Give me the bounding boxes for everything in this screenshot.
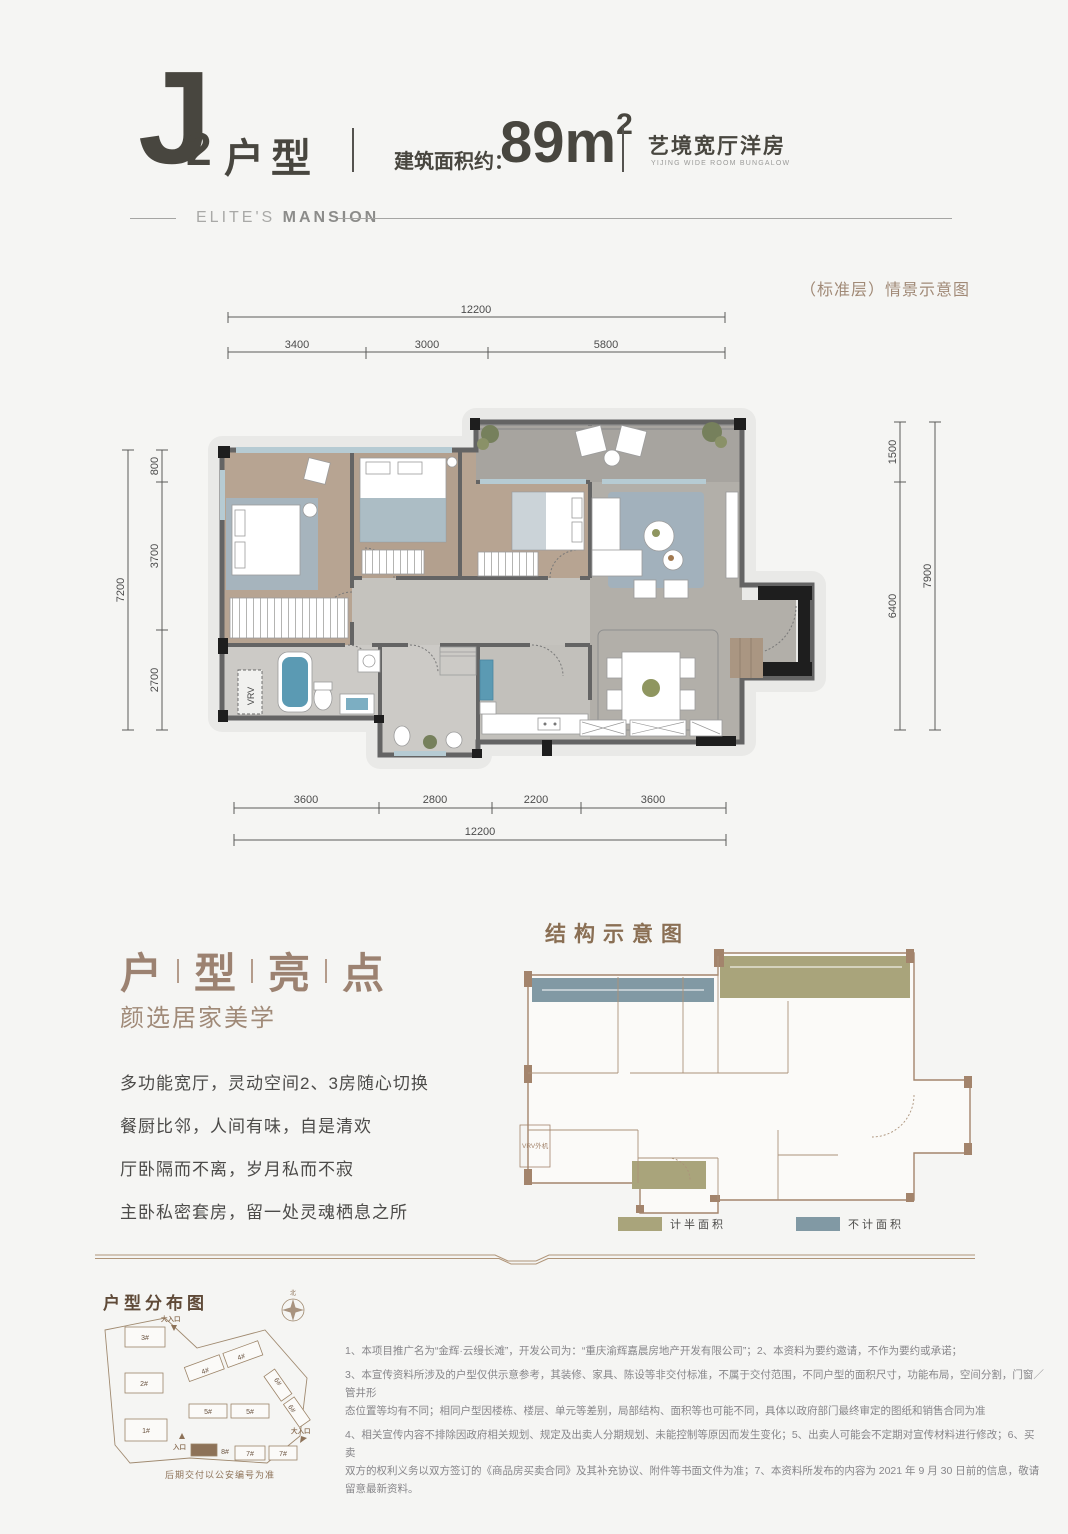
svg-text:7#: 7# (246, 1451, 254, 1458)
legend-label: 不计面积 (848, 1216, 904, 1232)
entrance-labels: 大入口 入口 大入口 (161, 1314, 311, 1451)
legend-label: 计半面积 (670, 1216, 726, 1232)
half-area-foyer (632, 1161, 706, 1189)
tagline-en: YIJING WIDE ROOM BUNGALOW (651, 160, 790, 167)
disclaimer-line: 1、本项目推广名为“金辉·云缦长滩”，开发公司为：“重庆渝辉嘉晨房地产开发有限公… (345, 1342, 1045, 1360)
svg-text:3600: 3600 (641, 794, 665, 806)
unit-type-label: 户型 (224, 126, 318, 184)
no-area-swatch (796, 1217, 840, 1231)
svg-text:北: 北 (290, 1289, 296, 1297)
highlight-line: 餐厨比邻，人间有味，自是清欢 (120, 1105, 429, 1148)
floor-plan: VRV 12200 3400 3000 5800 7200 800 (110, 300, 990, 860)
structure-legend: 计半面积 不计面积 (618, 1216, 904, 1232)
svg-text:1#: 1# (142, 1428, 150, 1435)
legend-item-no-area: 不计面积 (796, 1216, 904, 1232)
highlight-line: 多功能宽厅，灵动空间2、3房随心切换 (120, 1062, 429, 1105)
area-value: 89m2 (500, 110, 633, 172)
svg-text:3400: 3400 (285, 339, 309, 351)
area-label: 建筑面积约： (394, 145, 514, 174)
scene-note: （标准层）情景示意图 (730, 276, 970, 300)
svg-text:1500: 1500 (887, 440, 899, 464)
svg-text:VRV外机: VRV外机 (522, 1141, 549, 1150)
highlight-line: 厅卧隔而不离，岁月私而不寂 (120, 1148, 429, 1191)
header-divider-1 (352, 128, 354, 172)
svg-text:12200: 12200 (465, 826, 496, 838)
svg-text:2#: 2# (140, 1381, 148, 1388)
highlights-lines: 多功能宽厅，灵动空间2、3房随心切换 餐厨比邻，人间有味，自是清欢 厅卧隔而不离… (120, 1062, 429, 1234)
svg-text:3700: 3700 (149, 544, 161, 568)
svg-text:5800: 5800 (594, 339, 618, 351)
structure-diagram: VRV外机 (478, 905, 1043, 1255)
area-exponent: 2 (616, 108, 633, 141)
svg-text:800: 800 (149, 457, 161, 475)
highlights-title: 户 型 亮 点 (120, 940, 384, 1001)
svg-text:入口: 入口 (172, 1443, 186, 1451)
disclaimer: 1、本项目推广名为“金辉·云缦长滩”，开发公司为：“重庆渝辉嘉晨房地产开发有限公… (345, 1342, 1045, 1498)
svg-text:5#: 5# (246, 1409, 254, 1416)
highlights-subtitle: 颜选居家美学 (120, 998, 276, 1033)
svg-text:2700: 2700 (149, 668, 161, 692)
disclaimer-line: 双方的权利义务以双方签订的《商品房买卖合同》及其补充协议、附件等书面文件为准；7… (345, 1462, 1045, 1498)
header-divider-2 (622, 126, 624, 172)
svg-text:5#: 5# (204, 1409, 212, 1416)
vrv-label: VRV (246, 687, 256, 705)
svg-text:7200: 7200 (115, 578, 127, 602)
svg-text:3600: 3600 (294, 794, 318, 806)
siteplan-caption: 后期交付以公安编号为准 (140, 1468, 300, 1481)
svg-text:8#: 8# (221, 1449, 229, 1456)
brand-line-left (130, 218, 176, 219)
legend-item-half-area: 计半面积 (618, 1216, 726, 1232)
unit-number: 2 (186, 122, 212, 176)
disclaimer-line: 态位置等均有不同；相同户型因楼栋、楼层、单元等差别，局部结构、面积等也可能不同，… (345, 1402, 1045, 1420)
entrance-arrow-left (179, 1433, 185, 1439)
vrv-unit: VRV (238, 670, 262, 714)
svg-text:7900: 7900 (922, 564, 934, 588)
tagline-cn: 艺境宽厅洋房 (648, 130, 786, 160)
highlight-line: 主卧私密套房，留一处灵魂栖息之所 (120, 1191, 429, 1234)
flyer-page: J 2 户型 建筑面积约： 89m2 艺境宽厅洋房 YIJING WIDE RO… (0, 0, 1068, 1534)
site-buildings (125, 1327, 310, 1460)
svg-text:3000: 3000 (415, 339, 439, 351)
disclaimer-line: 4、相关宣传内容不排除因政府相关规划、规定及出卖人分期规划、未能控制等原因而发生… (345, 1426, 1045, 1462)
svg-text:2200: 2200 (524, 794, 548, 806)
svg-text:6400: 6400 (887, 594, 899, 618)
brand-line-right (338, 218, 952, 219)
svg-text:2800: 2800 (423, 794, 447, 806)
svg-text:7#: 7# (279, 1451, 287, 1458)
svg-text:3#: 3# (141, 1335, 149, 1342)
siteplan-map: 北 3# 2# 1# 4# 4# 5# 5# 6# 6# 8# 7# 7# (85, 1283, 335, 1498)
svg-text:大入口: 大入口 (161, 1314, 181, 1323)
entrance-arrow-right (300, 1436, 307, 1443)
svg-text:12200: 12200 (461, 304, 492, 316)
compass-icon: 北 (282, 1289, 304, 1321)
half-area-band (720, 956, 910, 998)
half-area-swatch (618, 1217, 662, 1231)
disclaimer-line: 3、本宣传资料所涉及的户型仅供示意参考，其装修、家具、陈设等非交付标准，不属于交… (345, 1366, 1045, 1402)
svg-text:大入口: 大入口 (291, 1426, 311, 1435)
